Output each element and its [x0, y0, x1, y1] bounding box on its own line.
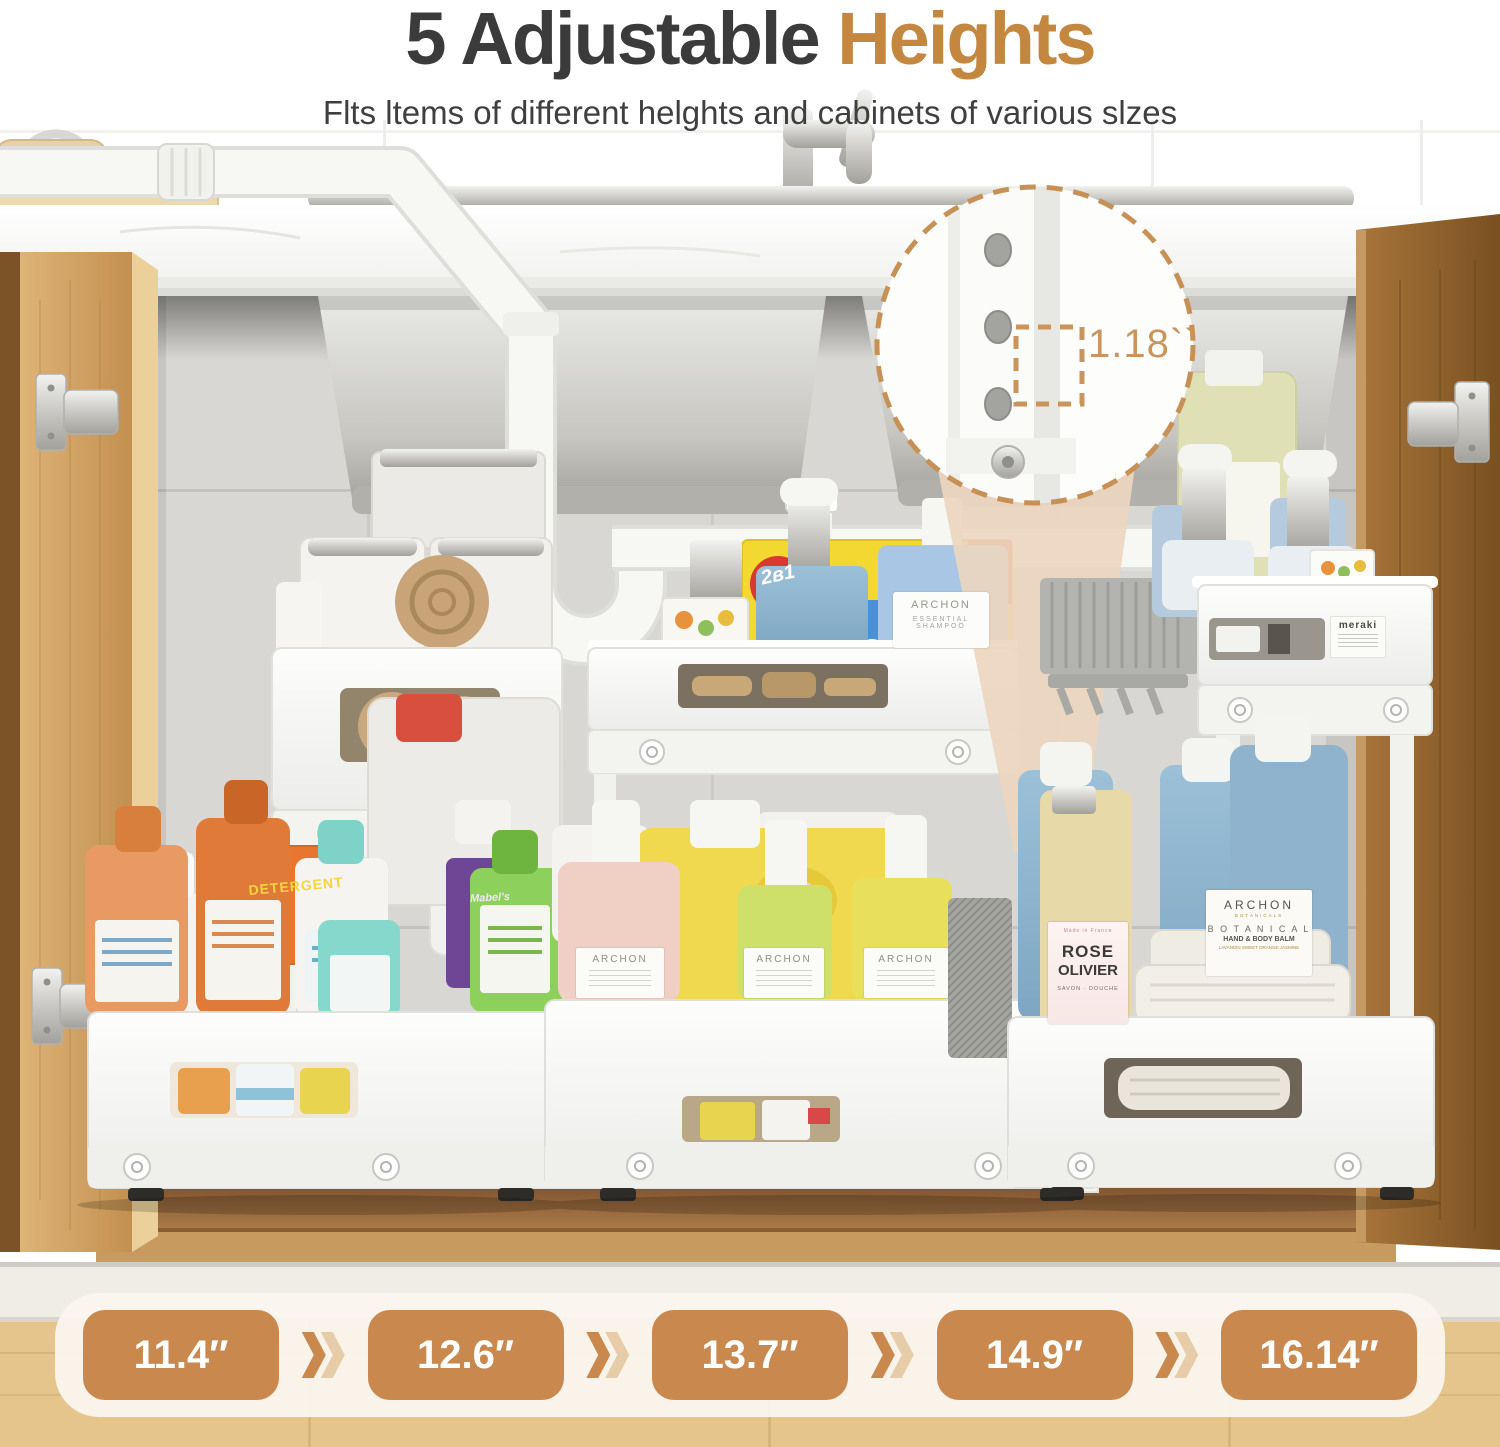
pump-brand: ARCHON	[576, 954, 664, 965]
rose-origin: Made in France	[1048, 928, 1128, 934]
pump-brand: ARCHON	[864, 954, 948, 965]
height-badge: 16.14″	[1221, 1310, 1417, 1400]
height-badge: 14.9″	[937, 1310, 1133, 1400]
shampoo-line1: ESSENTIAL	[893, 616, 989, 623]
chevron-right-icon	[865, 1332, 919, 1378]
balm-line1: B O T A N I C A L	[1206, 924, 1312, 934]
shampoo-brand: ARCHON	[893, 599, 989, 611]
pump-bottle-label: ARCHON	[744, 948, 824, 998]
balm-line3: LAVANDIN SWEET ORANGE JASMINE	[1206, 945, 1312, 950]
pump-finetext	[756, 970, 812, 986]
heights-bar: 11.4″ 12.6″ 13.7″ 14.9″ 16.14″	[55, 1293, 1445, 1417]
shampoo-label: ARCHON ESSENTIAL SHAMPOO	[893, 592, 989, 648]
balm-brand: ARCHON	[1206, 898, 1312, 912]
rose-line2: OLIVIER	[1048, 962, 1128, 979]
chevron-right-icon	[581, 1332, 635, 1378]
shampoo-line2: SHAMPOO	[893, 623, 989, 630]
page-subtitle: Flts ltems of different helghts and cabi…	[0, 94, 1500, 132]
chevron-right-icon	[296, 1332, 350, 1378]
rose-line3: SAVON · DOUCHE	[1048, 986, 1128, 992]
page-title: 5 Adjustable Heights	[0, 2, 1500, 76]
mesh-basket	[948, 898, 1012, 1058]
floor-shadows	[77, 1194, 1441, 1215]
measurement-label: 1.18``	[1088, 322, 1199, 367]
rose-line1: ROSE	[1048, 942, 1128, 962]
meraki-text: meraki	[1331, 620, 1385, 631]
pump-bottle-label: ARCHON	[576, 948, 664, 998]
meraki-finetext	[1338, 634, 1378, 648]
title-text-dark: 5 Adjustable	[405, 0, 818, 80]
height-badge: 12.6″	[368, 1310, 564, 1400]
pump-finetext	[589, 970, 651, 986]
meraki-label: meraki	[1330, 616, 1386, 658]
pump-finetext	[877, 970, 936, 986]
chevron-right-icon	[1150, 1332, 1204, 1378]
title-text-accent: Heights	[837, 0, 1094, 80]
balm-label: ARCHON BOTANICALS B O T A N I C A L HAND…	[1206, 890, 1312, 976]
height-badge: 13.7″	[652, 1310, 848, 1400]
under-sink-scene	[0, 0, 1500, 1447]
balm-line2: HAND & BODY BALM	[1206, 936, 1312, 943]
product-infographic: 5 Adjustable Heights Flts ltems of diffe…	[0, 0, 1500, 1447]
pump-brand: ARCHON	[744, 954, 824, 965]
rose-olivier-label: Made in France ROSE OLIVIER SAVON · DOUC…	[1048, 922, 1128, 1024]
height-badge: 11.4″	[83, 1310, 279, 1400]
balm-sub: BOTANICALS	[1206, 913, 1312, 918]
pump-bottle-label: ARCHON	[864, 948, 948, 998]
